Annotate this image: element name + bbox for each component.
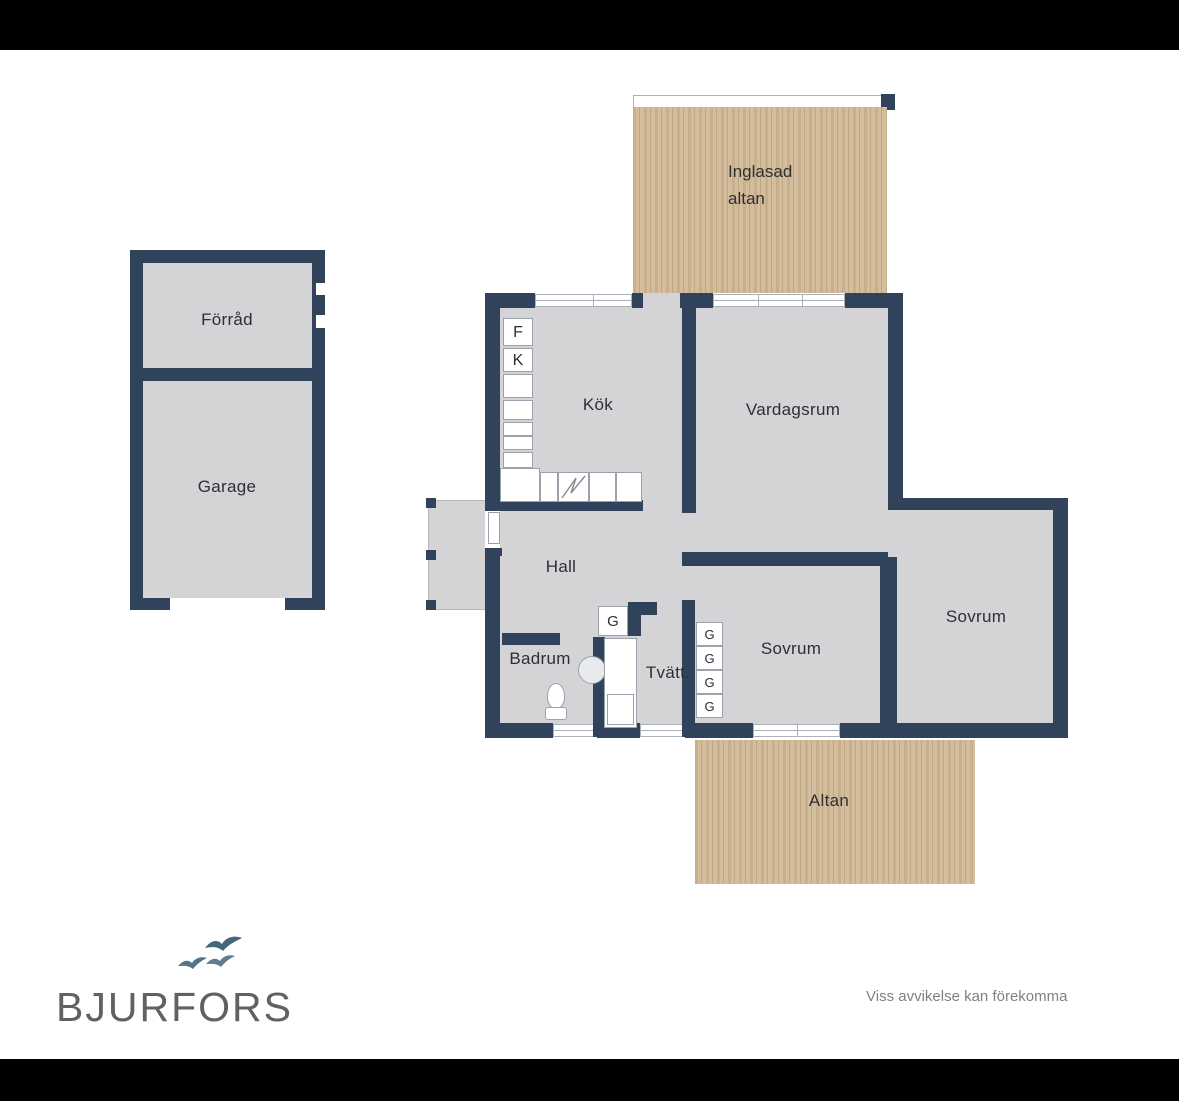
wall-east-upper [888, 293, 903, 508]
wardrobe-label: G [704, 699, 714, 714]
room-label-badrum: Badrum [509, 649, 570, 669]
room-label-hall: Hall [546, 557, 577, 577]
wardrobe-label: G [704, 651, 714, 666]
kitchen-counter-corner [500, 468, 540, 502]
fridge-label: F [513, 324, 523, 341]
wall-north-1 [488, 293, 535, 308]
bedroom-wardrobe: G [696, 694, 723, 718]
floorplan-page: Inglasadaltan Förråd Garage F K [0, 0, 1179, 1101]
sink-icon [578, 656, 606, 684]
porch-post [426, 550, 436, 560]
wall-south-3 [685, 723, 753, 738]
wall-east-lower [1053, 498, 1068, 738]
stove-icon [559, 473, 588, 501]
bedroom-wardrobe: G [696, 670, 723, 694]
wall-north-2 [632, 293, 643, 308]
letterbox-bottom [0, 1059, 1179, 1101]
washing-machine [607, 694, 634, 725]
kitchen-counter [503, 400, 533, 420]
toilet-tank-icon [545, 707, 567, 720]
bjurfors-logo: BJURFORS [56, 984, 293, 1031]
kok-deck-opening [643, 293, 680, 308]
forrad-door-gap2 [316, 315, 325, 328]
wall-kok-vardagsrum [682, 304, 696, 513]
bedroom-wardrobe: G [696, 646, 723, 670]
kitchen-counter [540, 472, 558, 502]
wall-extension-north [888, 498, 1068, 510]
letterbox-top [0, 0, 1179, 50]
kok-window [535, 294, 632, 307]
entrance-door-stub [485, 548, 502, 556]
hall-wardrobe: G [598, 606, 628, 636]
kitchen-sink [503, 422, 533, 436]
deck-altan-label: Altan [809, 791, 849, 811]
entrance-porch [428, 500, 490, 610]
kitchen-counter [503, 452, 533, 468]
porch-post [426, 498, 436, 508]
wall-badrum-north [502, 633, 560, 645]
kitchen-counter [503, 374, 533, 398]
forrad-door-gap [316, 283, 325, 295]
sovrum-altan-door [753, 724, 840, 737]
entrance-door-leaf [488, 512, 500, 544]
wall-south-1 [488, 723, 553, 738]
bedroom-wardrobe: G [696, 622, 723, 646]
garage-door-opening [170, 598, 285, 610]
deck-altan [695, 740, 975, 884]
toilet-bowl-icon [547, 683, 565, 709]
wall-closet-side [628, 602, 641, 636]
bjurfors-birds-icon [172, 933, 252, 985]
room-label-tvatt: Tvätt. [646, 663, 690, 683]
room-label-sovrum-left: Sovrum [761, 639, 821, 659]
wardrobe-label: G [607, 613, 619, 630]
room-label-vardagsrum: Vardagsrum [746, 400, 840, 420]
glazed-deck-label: Inglasadaltan [728, 158, 792, 212]
disclaimer-text: Viss avvikelse kan förekomma [866, 988, 1067, 1005]
room-label-forrad: Förråd [201, 310, 253, 330]
tvatt-window [640, 724, 685, 737]
room-label-kok: Kök [583, 395, 613, 415]
stove [558, 472, 589, 502]
wall-hall-sovrum [682, 552, 888, 566]
vardagsrum-window [713, 294, 845, 307]
kitchen-sink [503, 436, 533, 450]
room-label-garage: Garage [198, 477, 257, 497]
wall-south-4 [840, 723, 1068, 738]
wardrobe-label: G [704, 627, 714, 642]
kitchen-counter [616, 472, 642, 502]
badrum-window [553, 724, 597, 737]
porch-post [426, 600, 436, 610]
room-label-sovrum-right: Sovrum [946, 607, 1006, 627]
kitchen-counter [589, 472, 616, 502]
fridge-box: F [503, 318, 533, 346]
freezer-label: K [513, 352, 524, 369]
freezer-box: K [503, 348, 533, 372]
wardrobe-label: G [704, 675, 714, 690]
wall-between-bedrooms [880, 557, 897, 737]
